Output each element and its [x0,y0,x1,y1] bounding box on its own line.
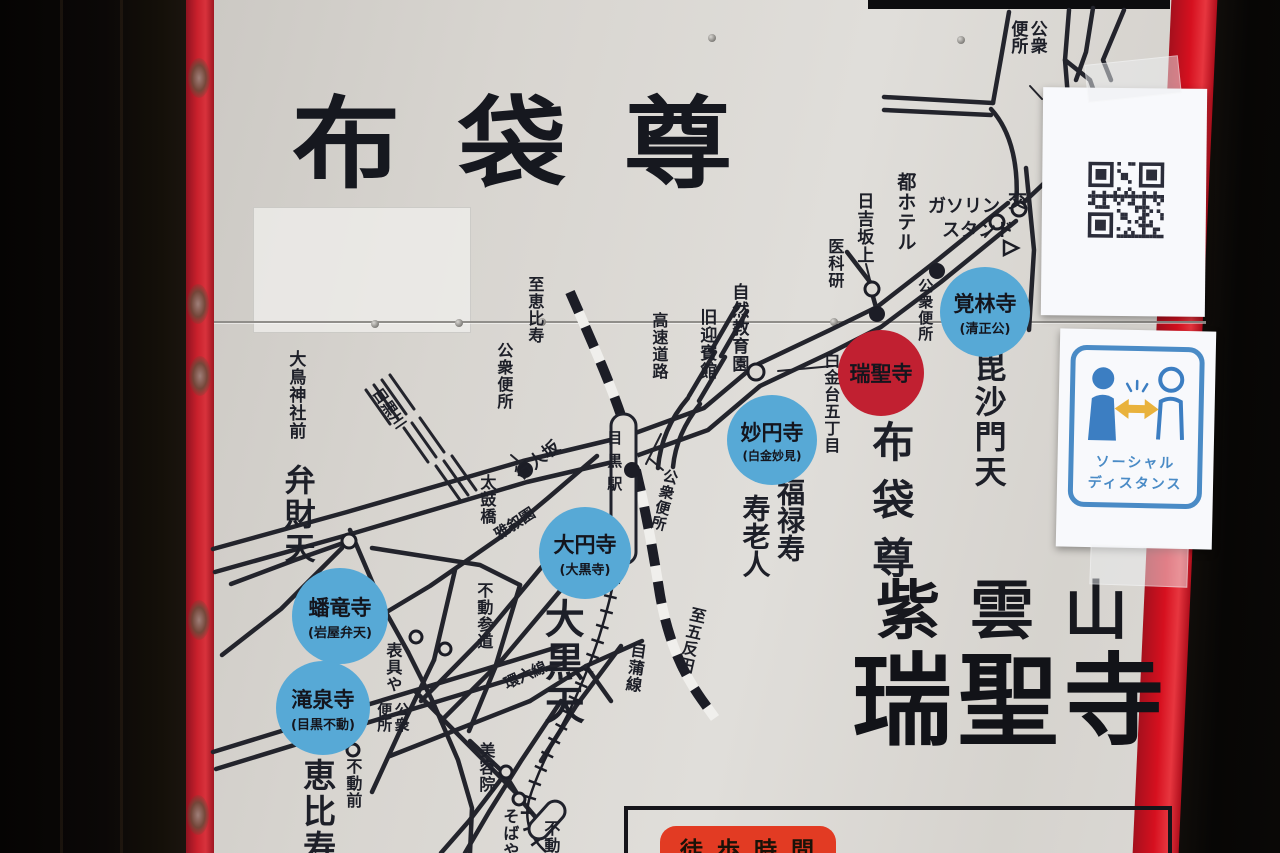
temple-circle-banryuji: 蟠竜寺 (岩屋弁天) [292,568,388,664]
qr-code [1088,162,1165,239]
social-distance-sign: ソーシャル ディスタンス [1068,345,1205,510]
label-public-toilet-megurodori: 公衆便所 [495,342,511,410]
label-deity-benzaiten: 弁財天 [280,464,312,566]
label-public-toilet-topright: 公衆便所 [1008,20,1045,54]
label-nature-park: 自然教育園 [729,283,746,373]
label-otori-jinja-mae: 大鳥神社前 [286,350,303,440]
label-deity-ebisu: 恵比寿神 [300,758,334,853]
social-distance-paper: ソーシャル ディスタンス [1056,328,1217,549]
label-ikaken: 医科研 [826,238,842,289]
label-shirokanedai-5: 白金台五丁目 [822,352,838,454]
label-expressway: 高速道路 [650,312,666,380]
tape-strip [1089,544,1188,587]
label-old-guesthouse: 旧迎賓館 [697,308,714,380]
signboard-photo: 布袋尊 公衆便所 都ホテル ガソリン スタンド 交 日吉坂上 医科研 公衆便所 … [0,0,1280,853]
walk-time-box: 徒歩時間 [624,806,1172,853]
label-fudomae: 不動前 [344,758,360,809]
social-distance-text: ソーシャル ディスタンス [1087,452,1183,496]
social-distance-pictogram [1080,364,1194,448]
temple-name-big: 瑞聖寺 [852,620,1170,765]
label-deity-bishamonten: 毘沙門天 [972,350,1005,490]
label-gas-station-2: スタンド [942,222,1014,241]
label-deity-fukurokuju-jurojin: 福禄寿 寿老人 [740,478,803,578]
label-to-ebisu: 至恵比寿 [526,276,542,344]
label-public-toilet-fudo: 公衆便所 [376,702,409,732]
temple-circle-zuishoji: 瑞聖寺 [838,330,924,416]
alert-spark-icon [1127,381,1147,391]
label-hyoguya: 表具や [384,642,400,693]
temple-circle-daienji: 大円寺 (大黒寺) [539,507,631,599]
qr-paper [1041,87,1207,317]
label-fudo-sando: 不動参道 [475,582,491,650]
label-crossing: 交 [1008,192,1027,212]
label-deity-daikokuten: 大黒天 [540,598,581,727]
label-miyako-hotel: 都ホテル [895,172,914,252]
label-sobaya: そばや [501,808,517,853]
label-gas-station-1: ガソリン [928,198,1000,217]
label-public-toilet-kakurinji: 公衆便所 [917,278,932,342]
person-right-icon [1158,368,1183,439]
label-hiyoshizaka-ue: 日吉坂上 [854,192,871,264]
label-taikobashi: 太鼓橋 [478,474,494,525]
label-meguro-station: 目黒駅 [606,430,621,499]
label-fudo-cut: 不動 [542,820,558,853]
temple-circle-ryusenji: 滝泉寺 (目黒不動) [276,661,370,755]
person-left-icon [1088,367,1118,441]
temple-circle-kakurinji: 覚林寺 (清正公) [940,267,1030,357]
sign-title: 布袋尊 [292,64,790,208]
label-beauty-salon: 美容院 [477,742,493,793]
distance-arrow-icon [1114,399,1158,420]
temple-circle-myoenji: 妙円寺 (白金妙見) [727,395,817,485]
walk-time-label: 徒歩時間 [660,826,836,853]
